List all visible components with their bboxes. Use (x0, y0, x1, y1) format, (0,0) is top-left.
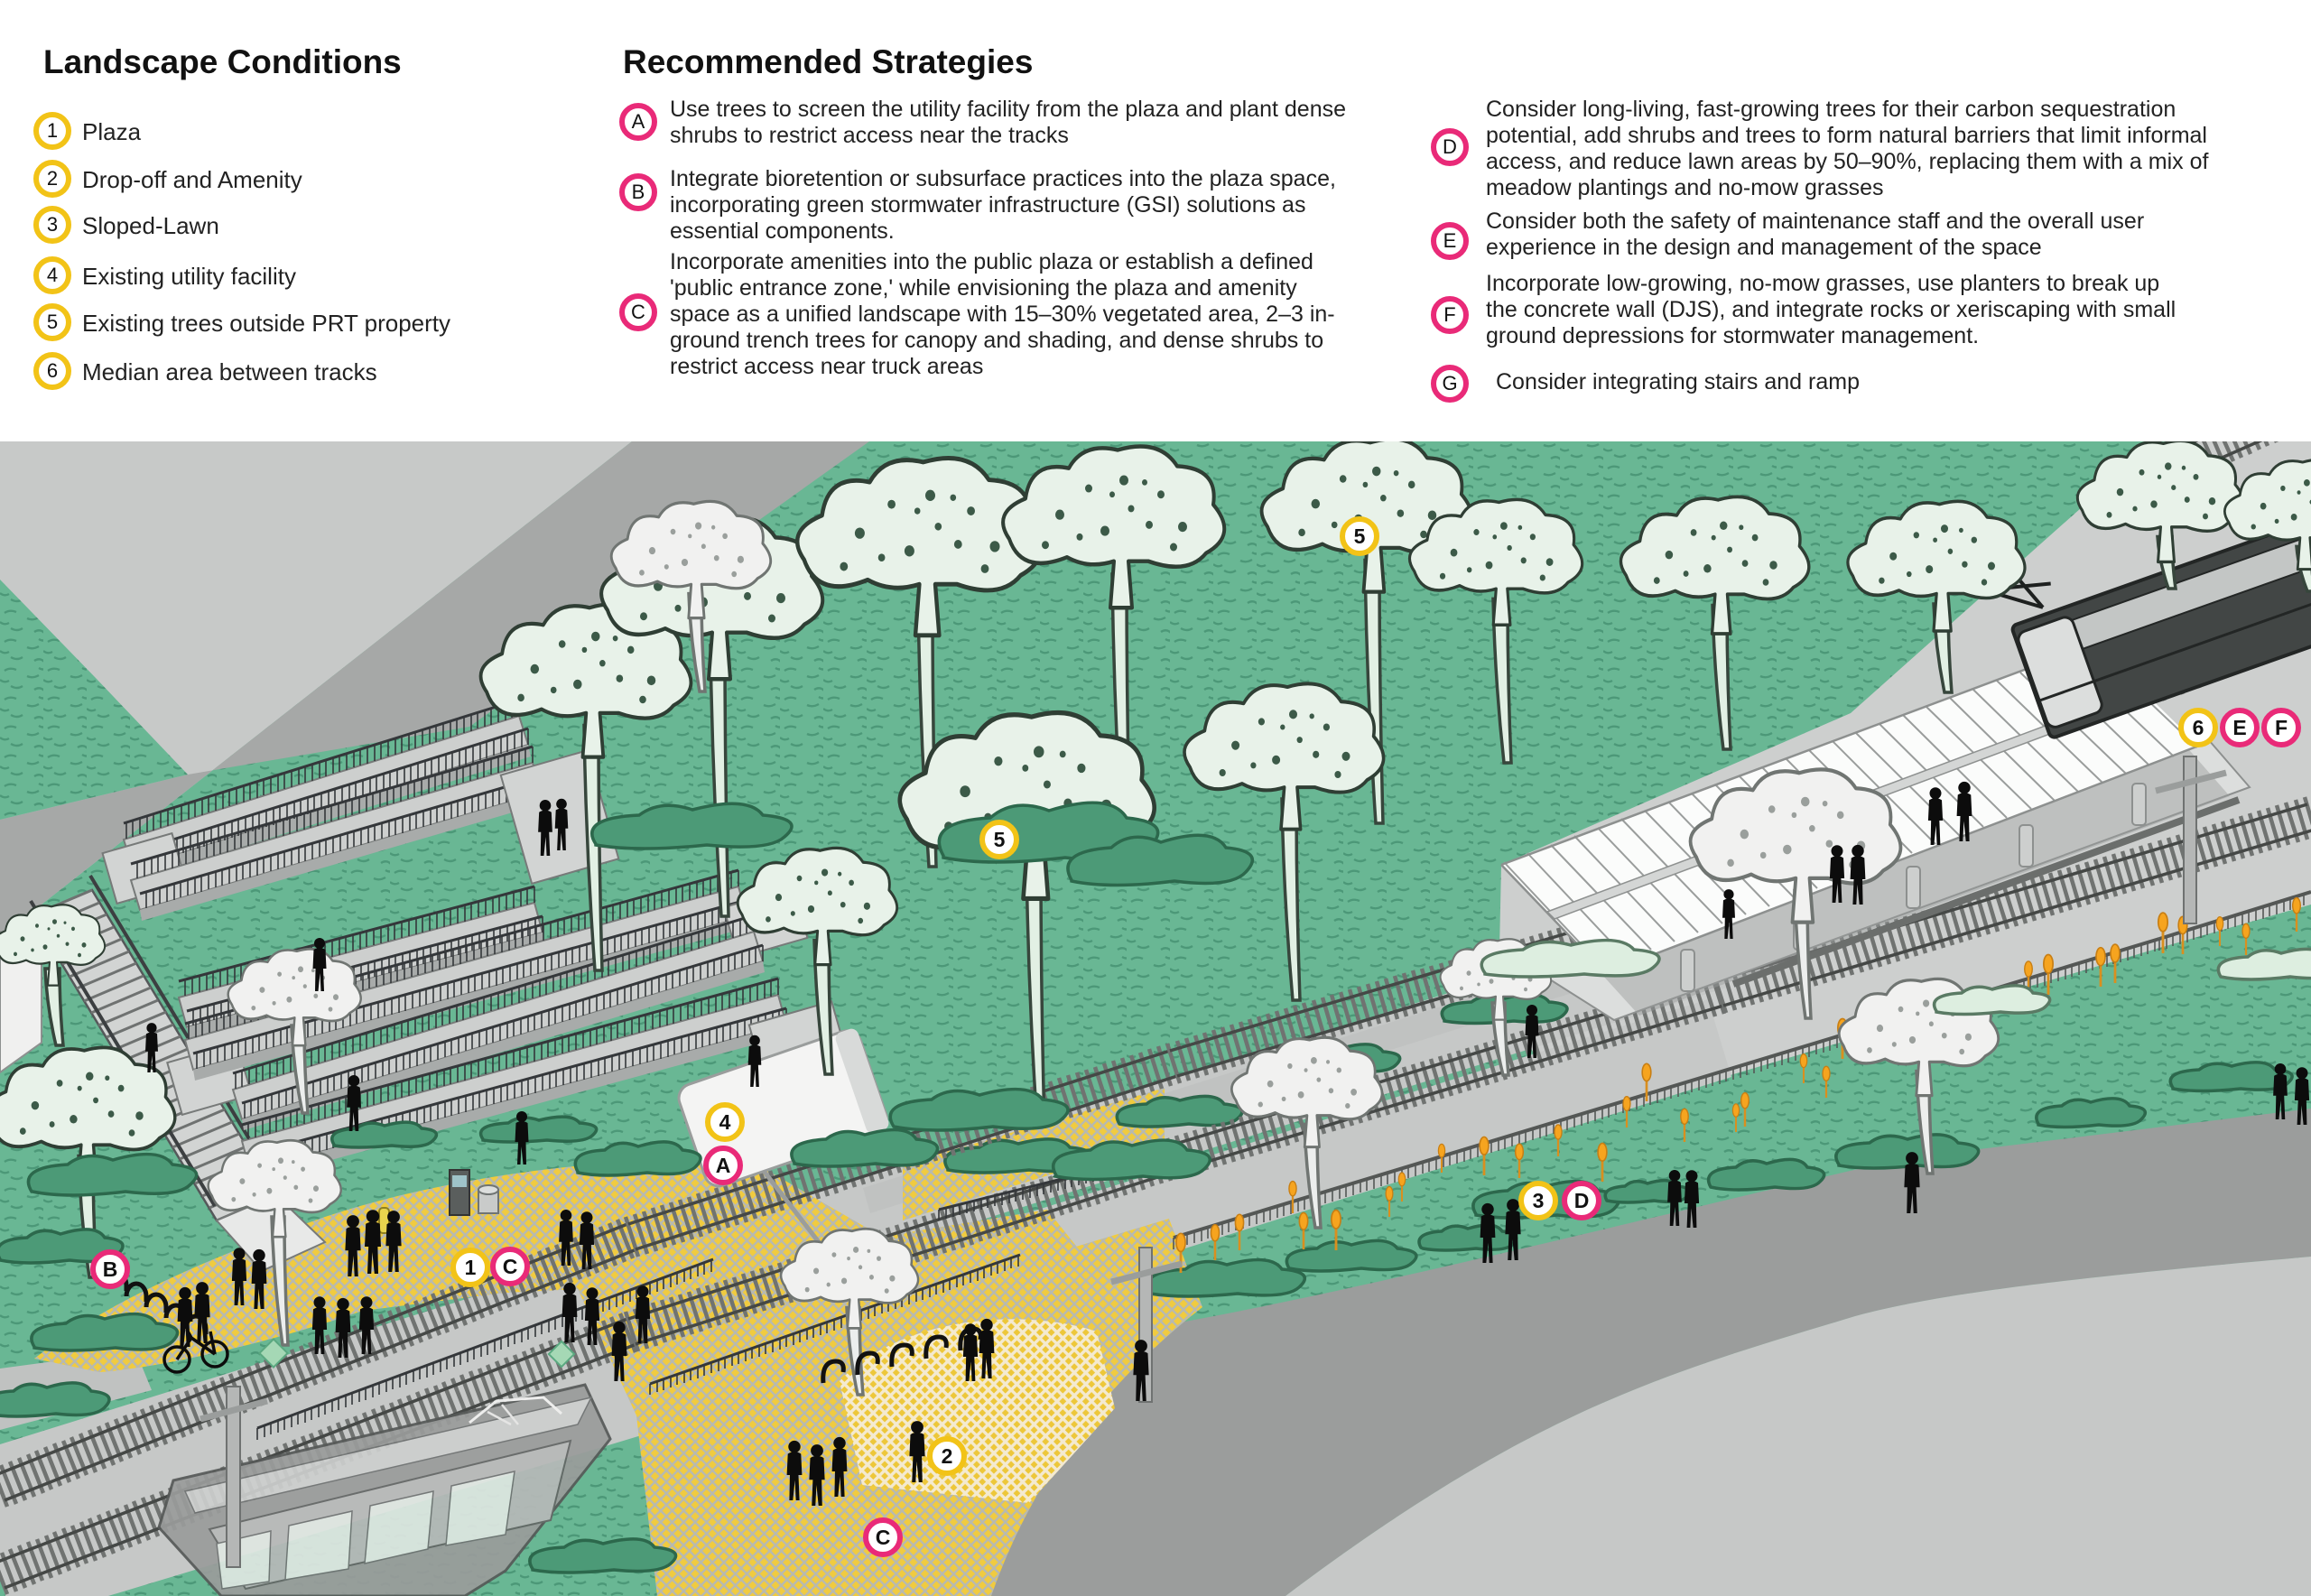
svg-text:B: B (103, 1257, 118, 1281)
svg-text:2: 2 (942, 1444, 953, 1468)
svg-text:5: 5 (994, 828, 1006, 851)
svg-text:6: 6 (2193, 716, 2204, 739)
svg-text:A: A (716, 1154, 731, 1177)
svg-text:5: 5 (1354, 524, 1366, 548)
svg-text:4: 4 (719, 1110, 731, 1134)
svg-text:C: C (876, 1526, 891, 1549)
svg-text:3: 3 (1533, 1189, 1545, 1212)
svg-text:D: D (1574, 1189, 1590, 1212)
svg-text:F: F (2275, 716, 2288, 739)
svg-text:C: C (503, 1255, 518, 1278)
svg-text:E: E (2232, 716, 2246, 739)
svg-text:1: 1 (465, 1256, 477, 1279)
